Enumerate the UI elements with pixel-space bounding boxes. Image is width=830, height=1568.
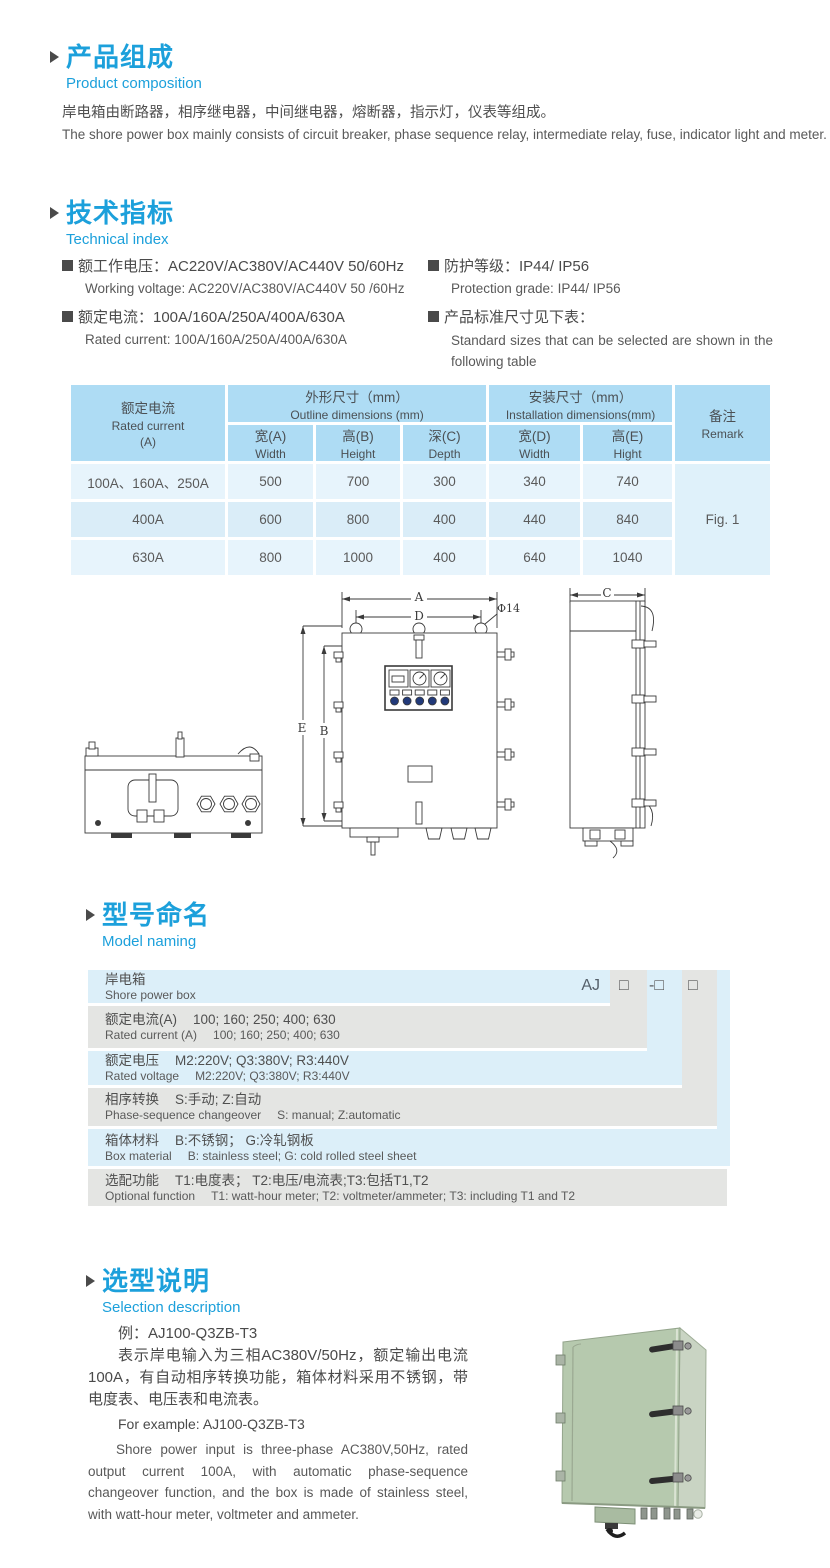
section-subtitle-selection: Selection description xyxy=(102,1299,240,1316)
composition-body-en: The shore power box mainly consists of c… xyxy=(62,127,827,142)
col-header-depth-c: 深(C)Depth xyxy=(402,424,488,463)
bullet-square-icon xyxy=(428,311,439,322)
bullet-square-icon xyxy=(62,260,73,271)
product-photo xyxy=(543,1295,795,1568)
selection-example-cn: 例：AJ100-Q3ZB-T3 xyxy=(118,1322,257,1343)
bullet-square-icon xyxy=(428,260,439,271)
composition-body-cn: 岸电箱由断路器，相序继电器，中间继电器，熔断器，指示灯，仪表等组成。 xyxy=(62,101,555,122)
cell-current: 100A、160A、250A xyxy=(70,463,227,501)
bullet-square-icon xyxy=(62,311,73,322)
cell-remark: Fig. 1 xyxy=(674,463,772,577)
section-subtitle-model-naming: Model naming xyxy=(102,933,210,950)
section-marker-icon xyxy=(50,207,59,219)
cell-depth-c: 400 xyxy=(402,539,488,577)
section-model-naming-header: 型号命名 Model naming xyxy=(86,900,210,950)
section-composition-header: 产品组成 Product composition xyxy=(50,42,202,92)
section-marker-icon xyxy=(50,51,59,63)
spec-working-voltage-cn: 额工作电压：AC220V/AC380V/AC440V 50/60Hz xyxy=(62,255,404,276)
instrument-panel xyxy=(385,666,452,710)
model-placeholder-box-3: □ xyxy=(688,977,698,995)
spec-standard-sizes-en: Standard sizes that can be selected are … xyxy=(451,330,773,372)
selection-body-en: Shore power input is three-phase AC380V,… xyxy=(88,1439,468,1525)
section-marker-icon xyxy=(86,909,95,921)
table-row: 100A、160A、250A 500 700 300 340 740 Fig. … xyxy=(70,463,772,501)
model-prefix: AJ xyxy=(558,977,600,995)
cell-width-a: 500 xyxy=(227,463,315,501)
section-subtitle-composition: Product composition xyxy=(66,75,202,92)
cell-depth-c: 400 xyxy=(402,501,488,539)
hole-label: Φ14 xyxy=(497,602,520,615)
cabinet-box xyxy=(556,1328,706,1536)
spec-protection-grade-cn: 防护等级：IP44/ IP56 xyxy=(428,255,589,276)
size-table: 额定电流 Rated current (A) 外形尺寸（mm） Outline … xyxy=(68,382,773,578)
dim-label-a: A xyxy=(414,590,424,604)
col-header-hight-e: 高(E)Hight xyxy=(582,424,674,463)
cell-hight-e: 740 xyxy=(582,463,674,501)
section-title-selection: 选型说明 xyxy=(102,1266,240,1296)
cell-width-d: 640 xyxy=(488,539,582,577)
cell-width-a: 600 xyxy=(227,501,315,539)
col-header-remark: 备注 Remark xyxy=(674,384,772,463)
bottom-view-drawing xyxy=(85,732,262,838)
section-selection-header: 选型说明 Selection description xyxy=(86,1266,240,1316)
naming-row-box-material: 箱体材料B:不锈钢； G:冷轧钢板 Box materialB: stainle… xyxy=(88,1129,730,1166)
spec-rated-current-cn: 额定电流：100A/160A/250A/400A/630A xyxy=(62,306,345,327)
dim-label-c: C xyxy=(602,586,611,600)
cell-current: 630A xyxy=(70,539,227,577)
latch-marks xyxy=(497,649,514,810)
naming-row-shore-power-box: 岸电箱 Shore power box xyxy=(88,970,610,1003)
selection-example-en: For example: AJ100-Q3ZB-T3 xyxy=(118,1416,305,1432)
section-title-composition: 产品组成 xyxy=(66,42,202,72)
spec-protection-grade-en: Protection grade: IP44/ IP56 xyxy=(451,281,621,296)
cell-width-d: 340 xyxy=(488,463,582,501)
cell-width-a: 800 xyxy=(227,539,315,577)
cell-height-b: 700 xyxy=(315,463,402,501)
section-title-technical: 技术指标 xyxy=(66,198,174,228)
dim-label-e: E xyxy=(298,721,307,735)
section-subtitle-technical: Technical index xyxy=(66,231,174,248)
table-row: 630A 800 1000 400 640 1040 xyxy=(70,539,772,577)
col-header-width-d: 宽(D)Width xyxy=(488,424,582,463)
model-placeholder-box-2: -□ xyxy=(649,977,664,995)
dim-label-b: B xyxy=(320,724,329,738)
cell-depth-c: 300 xyxy=(402,463,488,501)
cell-height-b: 800 xyxy=(315,501,402,539)
cell-hight-e: 1040 xyxy=(582,539,674,577)
dimension-drawings: A D Φ14 E B xyxy=(55,578,785,890)
spec-standard-sizes-cn: 产品标准尺寸见下表： xyxy=(428,306,594,327)
naming-row-optional-function: 选配功能T1:电度表； T2:电压/电流表;T3:包括T1,T2 Optiona… xyxy=(88,1169,727,1206)
model-naming-diagram: 岸电箱 Shore power box 额定电流(A)100; 160; 250… xyxy=(88,970,730,1206)
section-technical-header: 技术指标 Technical index xyxy=(50,198,174,248)
naming-row-phase-changeover: 相序转换S:手动; Z:自动 Phase-sequence changeover… xyxy=(88,1088,717,1126)
cell-hight-e: 840 xyxy=(582,501,674,539)
cell-current: 400A xyxy=(70,501,227,539)
naming-row-rated-voltage: 额定电压M2:220V; Q3:380V; R3:440V Rated volt… xyxy=(88,1051,682,1085)
cell-width-d: 440 xyxy=(488,501,582,539)
col-group-installation-dimensions: 安装尺寸（mm） Installation dimensions(mm) xyxy=(488,384,674,424)
dim-label-d: D xyxy=(414,609,424,623)
model-placeholder-box-1: □ xyxy=(619,977,629,995)
col-header-rated-current: 额定电流 Rated current (A) xyxy=(70,384,227,463)
col-header-width-a: 宽(A)Width xyxy=(227,424,315,463)
spec-rated-current-en: Rated current: 100A/160A/250A/400A/630A xyxy=(85,332,347,347)
section-marker-icon xyxy=(86,1275,95,1287)
table-row: 400A 600 800 400 440 840 xyxy=(70,501,772,539)
col-group-outline-dimensions: 外形尺寸（mm） Outline dimensions (mm) xyxy=(227,384,488,424)
spec-working-voltage-en: Working voltage: AC220V/AC380V/AC440V 50… xyxy=(85,281,404,296)
cell-height-b: 1000 xyxy=(315,539,402,577)
col-header-height-b: 高(B)Height xyxy=(315,424,402,463)
catalog-page: 产品组成 Product composition 岸电箱由断路器，相序继电器，中… xyxy=(0,0,830,1568)
section-title-model-naming: 型号命名 xyxy=(102,900,210,930)
side-view-drawing: C xyxy=(570,586,656,858)
front-view-drawing: A D Φ14 E B xyxy=(296,590,520,855)
naming-row-rated-current: 额定电流(A)100; 160; 250; 400; 630 Rated cur… xyxy=(88,1006,647,1048)
selection-body-cn: 表示岸电输入为三相AC380V/50Hz，额定输出电流100A，有自动相序转换功… xyxy=(88,1345,468,1411)
